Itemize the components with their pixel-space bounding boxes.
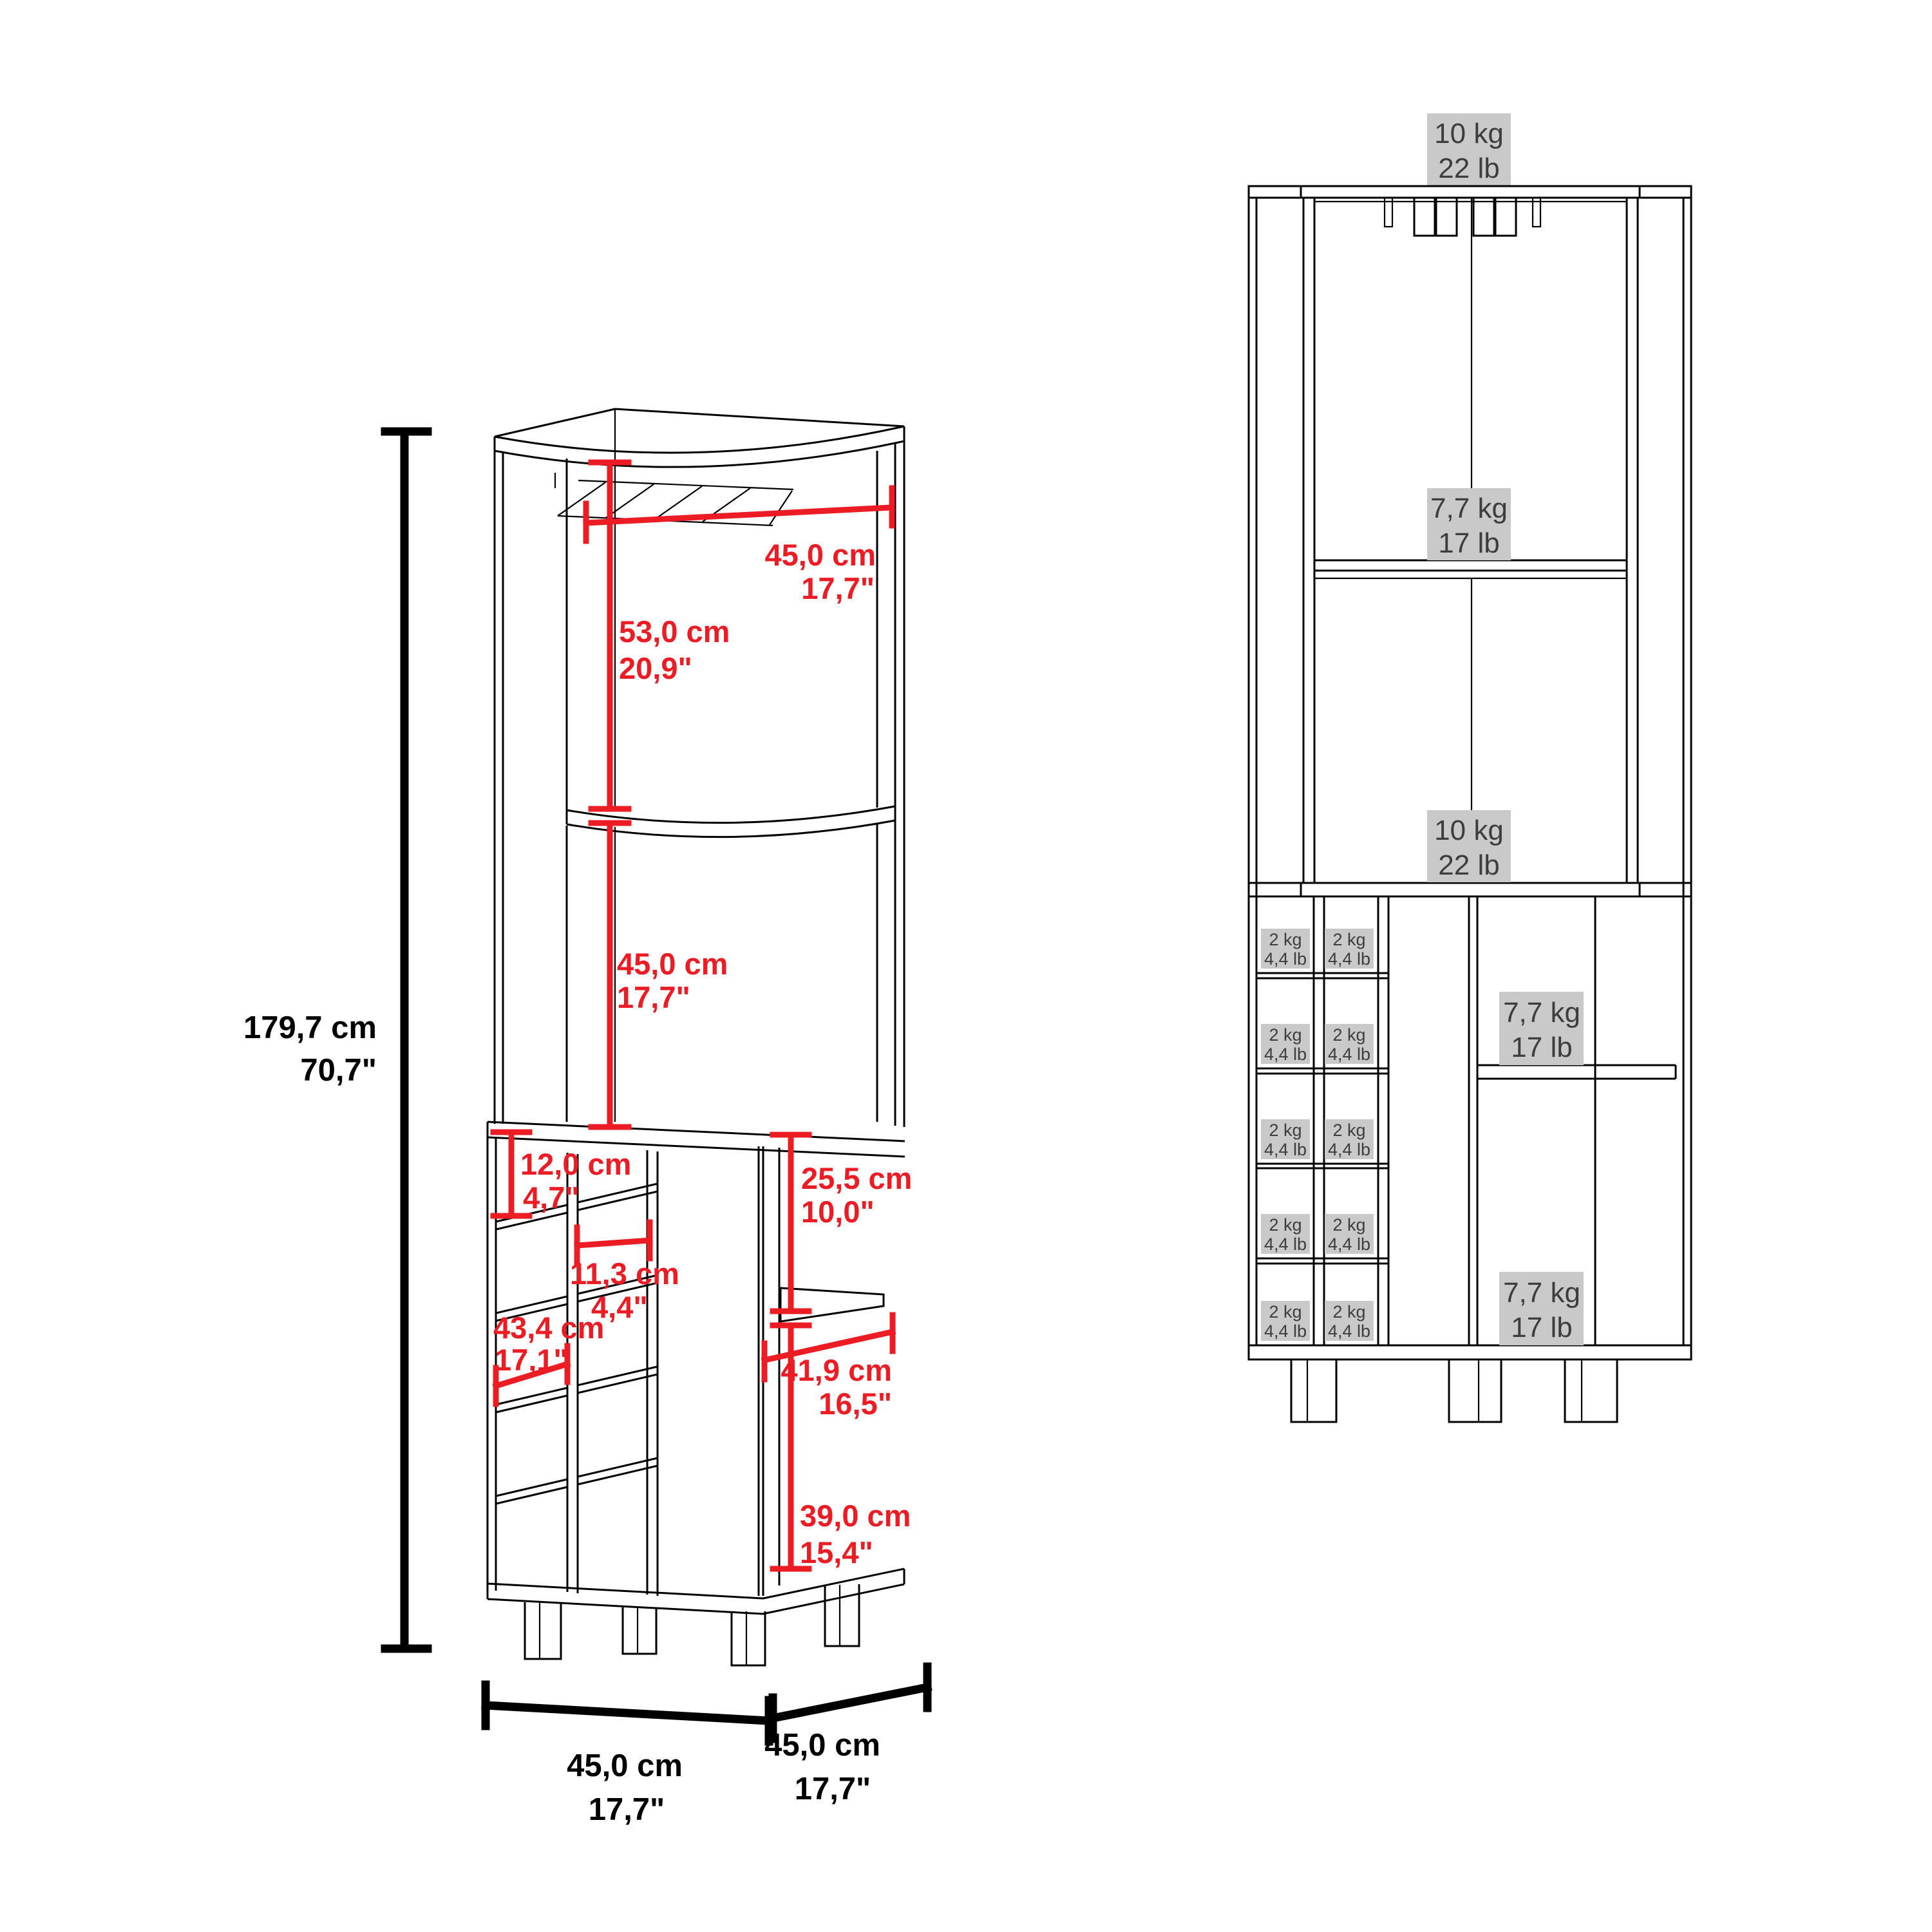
red-dimensions: 45,0 cm 17,7" 53,0 cm 20,9" 45,0 cm 17,7… xyxy=(493,462,912,1569)
base-top-edge xyxy=(488,1569,904,1598)
dim-cm: 12,0 cm xyxy=(520,1147,631,1181)
dim-cm: 11,3 cm xyxy=(570,1256,679,1291)
capacity-lb: 4,4 lb xyxy=(1328,949,1370,969)
cubby-label: 2 kg 4,4 lb xyxy=(1325,929,1374,969)
side-panels xyxy=(495,423,904,1127)
dim-cm: 39,0 cm xyxy=(800,1499,911,1533)
capacity-kg: 2 kg xyxy=(1269,930,1302,949)
capacity-lb: 17 lb xyxy=(1511,1032,1572,1063)
glass-slot xyxy=(1414,198,1435,236)
cabinet-legs xyxy=(525,1584,859,1665)
capacity-lb: 4,4 lb xyxy=(1264,1140,1307,1159)
capacity-kg: 2 kg xyxy=(1269,1302,1302,1321)
cubby-label: 2 kg 4,4 lb xyxy=(1325,1024,1374,1064)
dim-line xyxy=(577,1240,650,1245)
height-dim-in: 70,7" xyxy=(300,1053,377,1088)
cubby-shelf xyxy=(496,1396,567,1412)
dim-in: 17,7" xyxy=(795,1772,871,1806)
top-panel-front-edge xyxy=(495,426,904,453)
middle-section-dimension: 45,0 cm 17,7" xyxy=(591,823,728,1127)
dim-cm: 53,0 cm xyxy=(619,614,730,649)
base-bottom-edge xyxy=(488,1584,904,1614)
upper-bottom-capacity-label: 10 kg 22 lb xyxy=(1427,810,1511,882)
capacity-lb: 4,4 lb xyxy=(1328,1235,1370,1254)
cubby-shelf xyxy=(496,1479,567,1496)
cubby-shelf xyxy=(578,1184,658,1202)
capacity-lb: 4,4 lb xyxy=(1328,1321,1370,1341)
capacity-kg: 10 kg xyxy=(1434,118,1504,149)
cubby-shelf xyxy=(496,1388,567,1405)
capacity-kg: 7,7 kg xyxy=(1430,493,1508,524)
capacity-lb: 4,4 lb xyxy=(1328,1045,1370,1064)
capacity-lb: 4,4 lb xyxy=(1328,1140,1370,1159)
capacity-kg: 7,7 kg xyxy=(1503,1277,1580,1309)
cubby-shelf xyxy=(578,1191,658,1210)
capacity-lb: 17 lb xyxy=(1511,1312,1572,1343)
cubby-label: 2 kg 4,4 lb xyxy=(1325,1301,1374,1341)
cubby-shelf xyxy=(578,1374,658,1393)
dim-in: 20,9" xyxy=(619,651,692,685)
capacity-kg: 10 kg xyxy=(1434,815,1504,846)
cubby-label: 2 kg 4,4 lb xyxy=(1261,1214,1310,1254)
divider-board-top-edge xyxy=(488,1122,905,1141)
section-divider-board xyxy=(1249,883,1691,896)
perspective-view: 179,7 cm 70,7" xyxy=(243,409,927,1827)
glass-rack-slots xyxy=(1385,198,1540,236)
front-view-legs xyxy=(1291,1359,1617,1422)
dim-line xyxy=(773,1687,927,1718)
dim-line xyxy=(486,1705,769,1721)
capacity-kg: 2 kg xyxy=(1332,1215,1365,1235)
dim-in: 15,4" xyxy=(800,1535,873,1569)
rack-rail xyxy=(558,482,605,516)
base-dimensions: 45,0 cm 17,7" 45,0 cm 17,7" xyxy=(486,1667,927,1827)
dim-cm: 45,0 cm xyxy=(567,1748,683,1783)
capacity-kg: 2 kg xyxy=(1332,1121,1365,1140)
top-board xyxy=(1249,186,1691,198)
dim-in: 17,7" xyxy=(617,980,690,1014)
dim-cm: 41,9 cm xyxy=(781,1353,892,1387)
shelf-board xyxy=(1314,560,1627,571)
cubby-label: 2 kg 4,4 lb xyxy=(1261,1119,1310,1159)
top-panel xyxy=(495,409,904,467)
front-view: 10 kg 22 lb xyxy=(1249,113,1691,1422)
glass-slot xyxy=(1495,198,1516,236)
leg-front-left xyxy=(623,1607,656,1654)
rack-rail xyxy=(606,484,654,518)
capacity-kg: 2 kg xyxy=(1332,930,1365,949)
height-dimension: 179,7 cm 70,7" xyxy=(243,431,428,1649)
dim-cm: 45,0 cm xyxy=(765,538,876,572)
capacity-lb: 22 lb xyxy=(1438,849,1499,881)
leg-back-right xyxy=(825,1584,859,1646)
bottom-board xyxy=(1249,1345,1691,1359)
leg-front-right xyxy=(732,1611,765,1665)
cubby-label: 2 kg 4,4 lb xyxy=(1325,1214,1374,1254)
lower-section-frame xyxy=(1256,896,1676,1345)
top-capacity-label: 10 kg 22 lb xyxy=(1427,113,1511,186)
capacity-lb: 4,4 lb xyxy=(1264,1321,1307,1341)
dim-in: 17,1" xyxy=(495,1343,568,1377)
dim-cm: 43,4 cm xyxy=(493,1311,604,1345)
capacity-lb: 4,4 lb xyxy=(1264,949,1307,969)
capacity-kg: 2 kg xyxy=(1332,1025,1365,1045)
leg-right xyxy=(1565,1359,1617,1422)
dim-in: 10,0" xyxy=(801,1195,875,1229)
base-panel xyxy=(488,1569,904,1614)
dim-cm: 45,0 cm xyxy=(764,1728,880,1763)
capacity-kg: 2 kg xyxy=(1332,1302,1365,1321)
capacity-kg: 2 kg xyxy=(1269,1121,1302,1140)
side-bottom-capacity-label: 7,7 kg 17 lb xyxy=(1499,1272,1584,1345)
side-shelf-width-dimension: 41,9 cm 16,5" xyxy=(764,1315,893,1421)
cubby-shelf xyxy=(578,1367,658,1385)
capacity-lb: 22 lb xyxy=(1438,153,1499,184)
dim-in: 4,7" xyxy=(523,1180,580,1215)
cubby-shelf xyxy=(578,1466,658,1484)
leg-left xyxy=(1291,1359,1336,1422)
base-width-dimension: 45,0 cm 17,7" xyxy=(486,1685,769,1827)
side-upper-dimension: 25,5 cm 10,0" xyxy=(773,1135,912,1311)
dim-in: 17,7" xyxy=(589,1792,665,1827)
top-width-dimension: 45,0 cm 17,7" xyxy=(586,488,892,605)
capacity-kg: 2 kg xyxy=(1269,1025,1302,1045)
upper-shelf xyxy=(1314,560,1627,578)
rack-end-rail xyxy=(770,491,792,525)
capacity-kg: 2 kg xyxy=(1269,1215,1302,1235)
cubby-label: 2 kg 4,4 lb xyxy=(1261,929,1310,969)
cubby-label: 2 kg 4,4 lb xyxy=(1325,1119,1374,1159)
capacity-lb: 17 lb xyxy=(1438,527,1499,559)
cubby-shelf xyxy=(496,1487,567,1504)
cubby-label: 2 kg 4,4 lb xyxy=(1261,1024,1310,1064)
dim-in: 16,5" xyxy=(819,1387,892,1421)
dim-cm: 25,5 cm xyxy=(801,1161,912,1195)
leg-back-left xyxy=(525,1602,561,1659)
height-dim-cm: 179,7 cm xyxy=(243,1010,377,1045)
side-compartment-shelf xyxy=(781,1288,884,1321)
cubby-width-dimension: 11,3 cm 4,4" xyxy=(570,1222,679,1324)
capacity-labels: 7,7 kg 17 lb 10 kg 22 lb 7,7 kg 17 lb 7,… xyxy=(1261,488,1584,1345)
cabinet-front xyxy=(1249,186,1691,1422)
cubby-shelf xyxy=(578,1458,658,1477)
cubby-label: 2 kg 4,4 lb xyxy=(1261,1301,1310,1341)
dim-cm: 45,0 cm xyxy=(617,947,728,981)
glass-slot xyxy=(1473,198,1494,236)
dim-line xyxy=(586,507,892,523)
upper-shelf-capacity-label: 7,7 kg 17 lb xyxy=(1427,488,1511,560)
top-panel-back-edges xyxy=(495,409,904,437)
capacity-kg: 7,7 kg xyxy=(1503,997,1580,1028)
glass-slot xyxy=(1436,198,1457,236)
cubby-capacity-labels: 2 kg 4,4 lb 2 kg 4,4 lb 2 kg 4,4 lb 2 kg… xyxy=(1261,929,1374,1341)
side-shelf-capacity-label: 7,7 kg 17 lb xyxy=(1499,992,1584,1065)
dim-in: 17,7" xyxy=(801,571,875,605)
capacity-lb: 4,4 lb xyxy=(1264,1045,1307,1064)
leg-center xyxy=(1449,1359,1501,1422)
capacity-lb: 4,4 lb xyxy=(1264,1235,1307,1254)
furniture-dimension-diagram: 179,7 cm 70,7" xyxy=(0,0,1932,1932)
base-depth-dimension: 45,0 cm 17,7" xyxy=(764,1667,927,1806)
